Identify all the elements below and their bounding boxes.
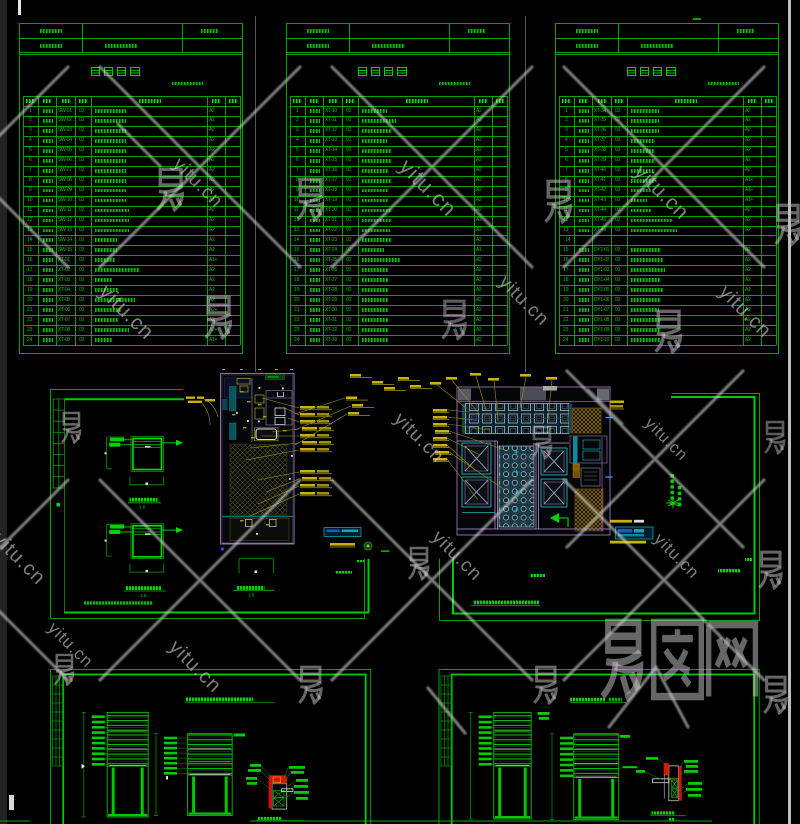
svg-text:yitu.cn: yitu.cn bbox=[164, 636, 225, 697]
svg-text:yitu.cn: yitu.cn bbox=[94, 280, 158, 344]
svg-text:yitu.cn: yitu.cn bbox=[0, 528, 50, 589]
svg-text:yitu.cn: yitu.cn bbox=[714, 281, 775, 342]
svg-text:yitu.cn: yitu.cn bbox=[494, 272, 553, 331]
svg-text:yitu.cn: yitu.cn bbox=[641, 415, 691, 465]
svg-text:yitu.cn: yitu.cn bbox=[389, 409, 448, 468]
